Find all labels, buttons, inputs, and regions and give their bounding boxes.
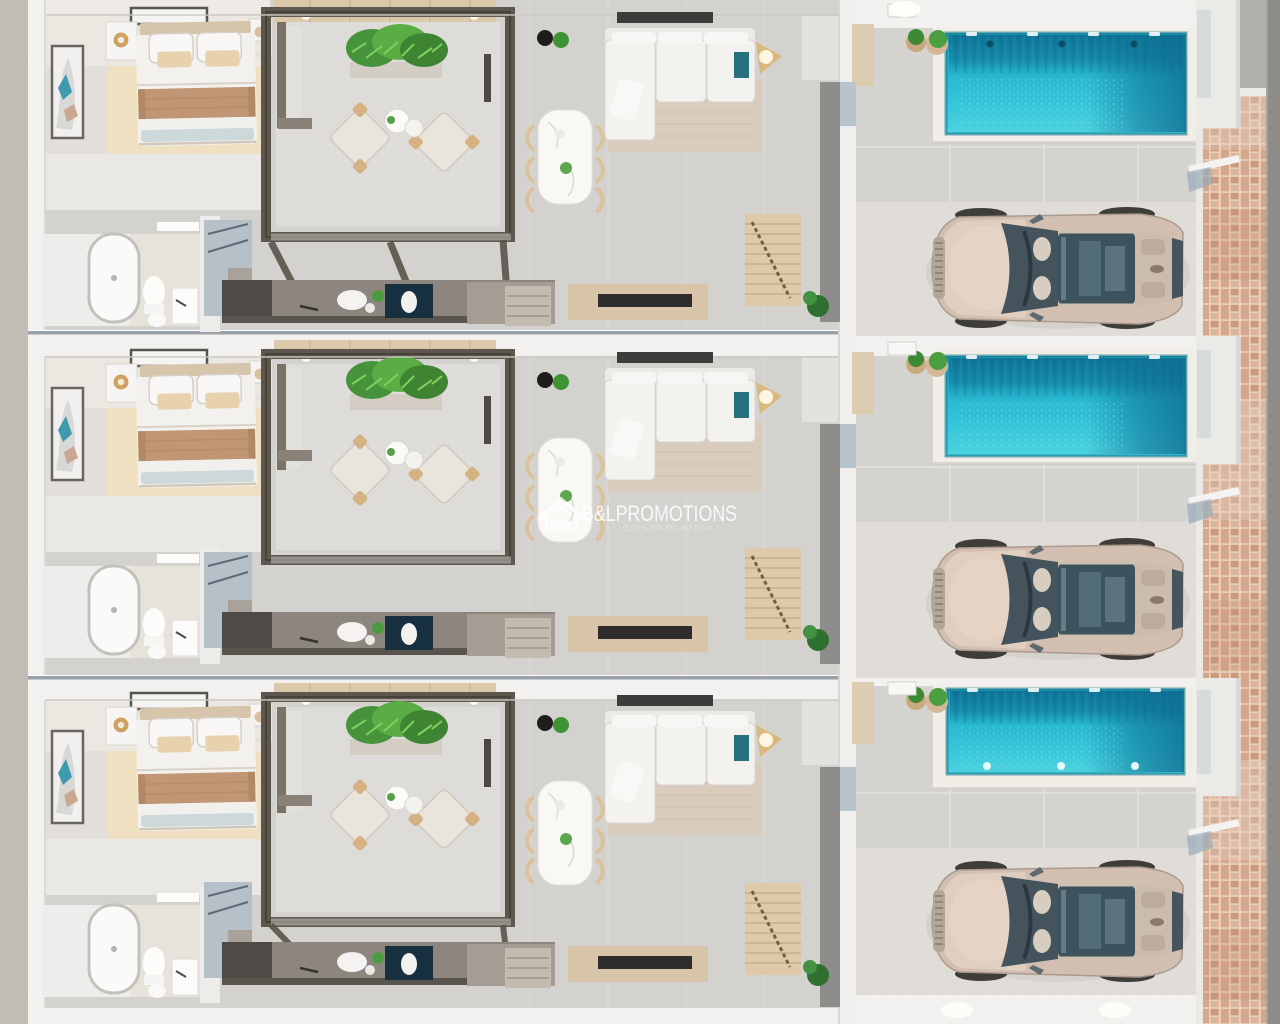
svg-text:COSTA BLANCA: COSTA BLANCA: [622, 523, 714, 533]
